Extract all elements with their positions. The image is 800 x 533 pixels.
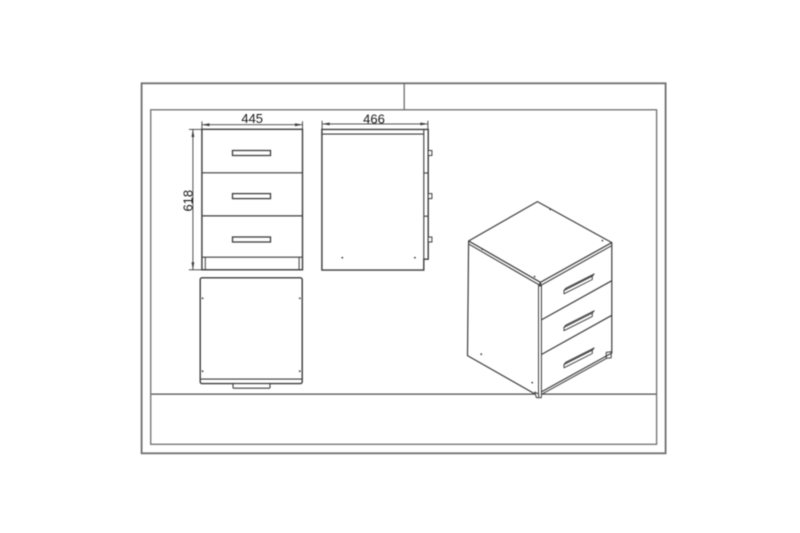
svg-text:445: 445: [241, 111, 263, 126]
svg-text:466: 466: [363, 111, 385, 126]
svg-text:618: 618: [180, 190, 195, 212]
